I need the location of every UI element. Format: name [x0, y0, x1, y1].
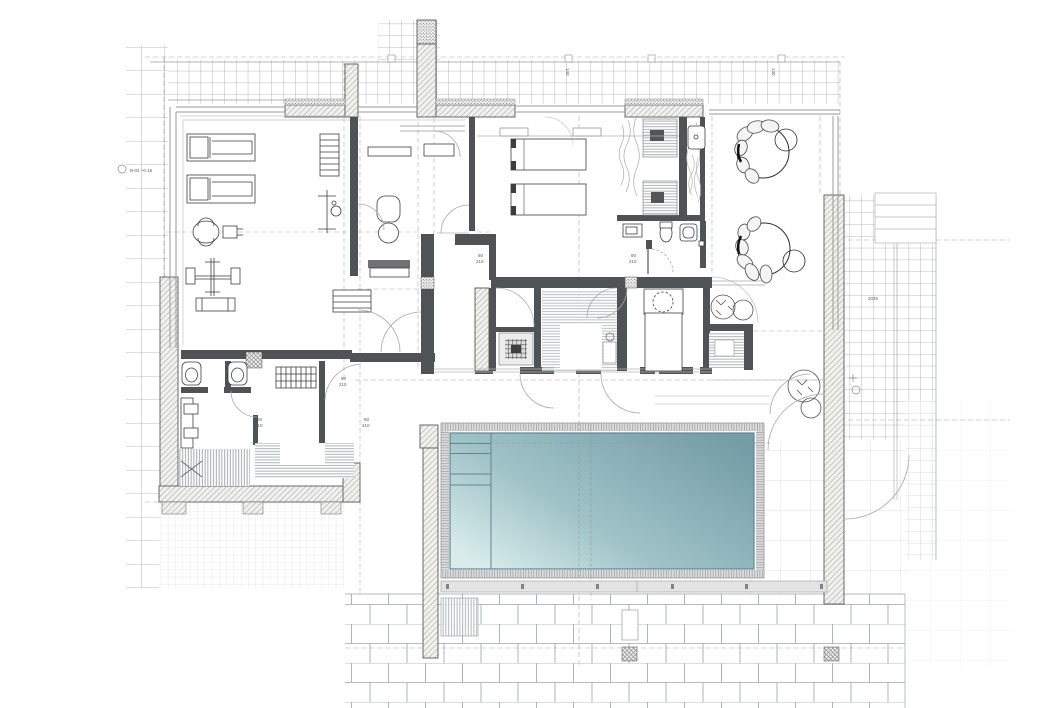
svg-text:80: 80	[631, 253, 637, 258]
svg-text:210: 210	[629, 259, 637, 264]
svg-text:2026: 2026	[868, 296, 879, 301]
svg-text:B-02 +0.15: B-02 +0.15	[130, 168, 153, 173]
svg-text:90: 90	[341, 376, 347, 381]
svg-text:140: 140	[565, 68, 570, 76]
svg-text:140: 140	[771, 68, 776, 76]
svg-text:210: 210	[255, 423, 263, 428]
svg-text:210: 210	[476, 259, 484, 264]
svg-text:210: 210	[362, 423, 370, 428]
svg-text:80: 80	[478, 253, 484, 258]
svg-text:60: 60	[257, 417, 263, 422]
svg-text:210: 210	[339, 382, 347, 387]
svg-text:60: 60	[364, 417, 370, 422]
